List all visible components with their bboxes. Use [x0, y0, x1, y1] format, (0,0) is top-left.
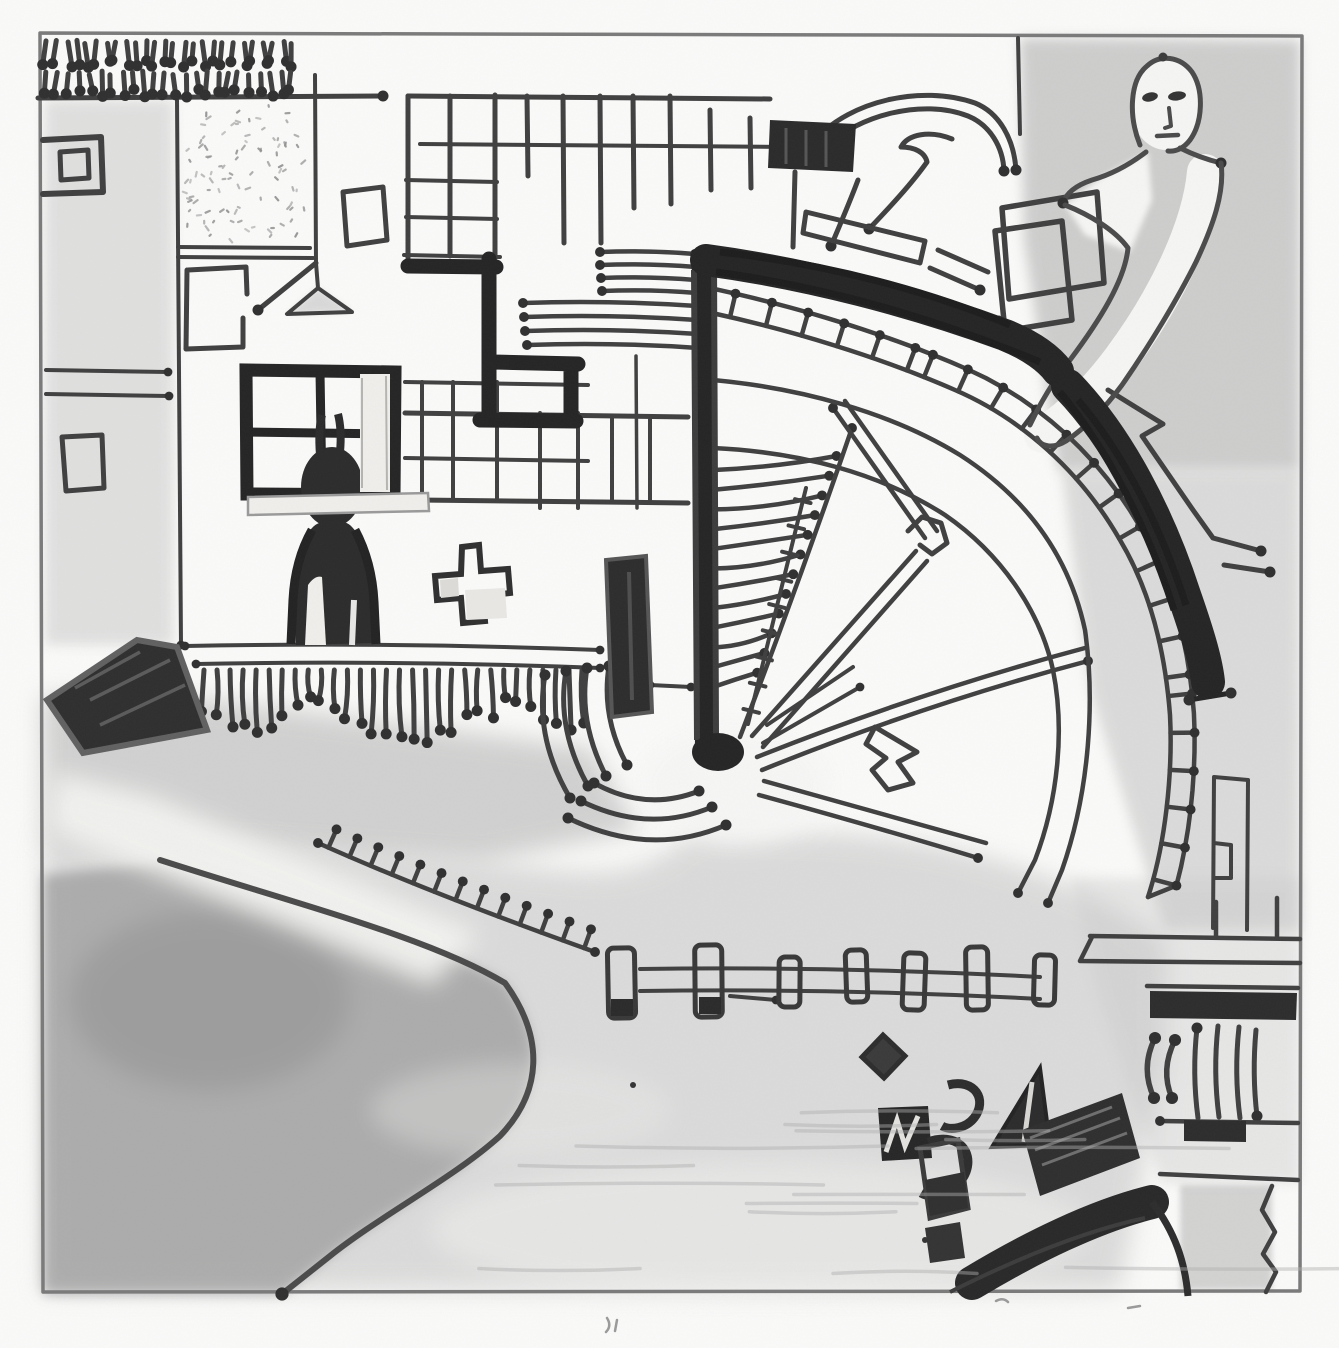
grain-texture — [0, 0, 1339, 1348]
sketch-canvas — [0, 0, 1339, 1348]
drawing-svg — [0, 0, 1339, 1348]
